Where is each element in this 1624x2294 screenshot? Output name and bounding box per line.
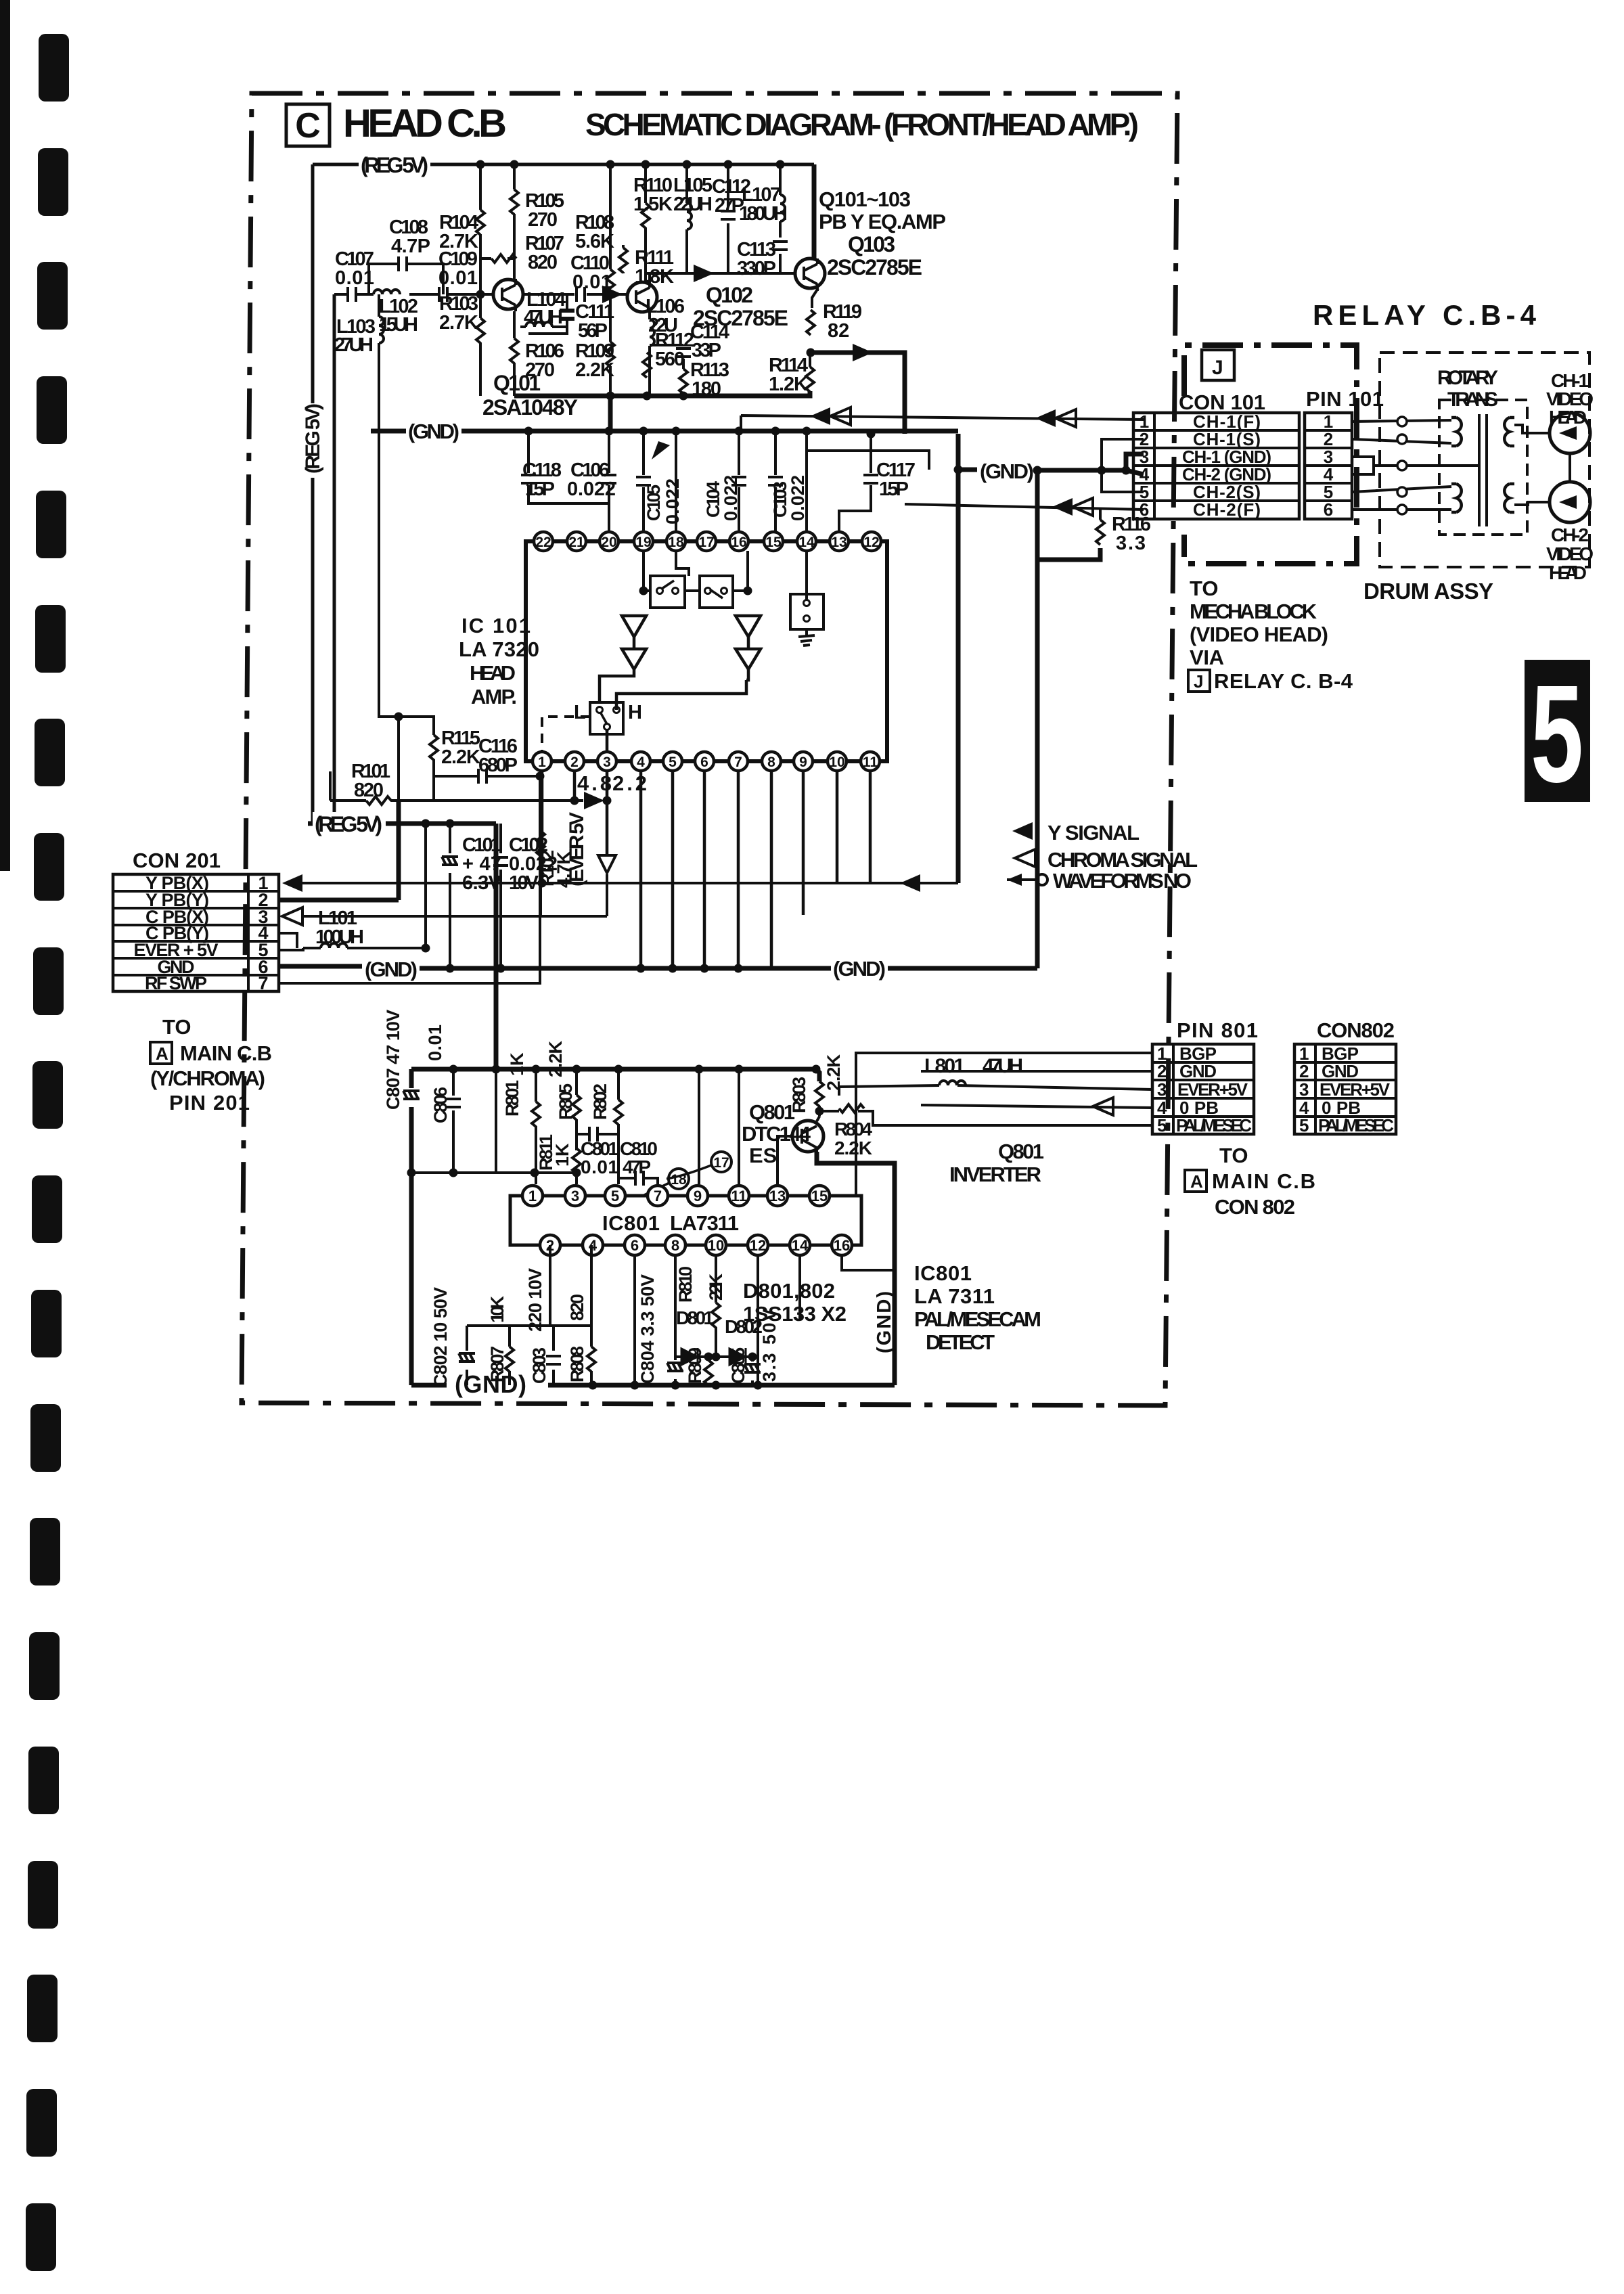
svg-text:11: 11 [731, 1188, 746, 1205]
svg-text:820: 820 [567, 1294, 587, 1321]
svg-text:47UH: 47UH [524, 307, 563, 328]
svg-text:15: 15 [811, 1188, 828, 1205]
svg-text:J: J [1194, 671, 1203, 692]
svg-text:PAL/MESEC: PAL/MESEC [1318, 1115, 1394, 1135]
svg-text:Q801: Q801 [749, 1100, 795, 1124]
svg-text:(GND): (GND) [365, 958, 418, 981]
svg-text:PIN 801: PIN 801 [1177, 1018, 1258, 1042]
svg-text:HEAD C.B: HEAD C.B [343, 102, 512, 145]
svg-text:CON 802: CON 802 [1215, 1195, 1295, 1219]
svg-text:3: 3 [1157, 1079, 1167, 1100]
svg-text:WAVEFORMS NO: WAVEFORMS NO [1053, 869, 1192, 893]
svg-text:22UH: 22UH [673, 194, 713, 215]
svg-text:HEAD: HEAD [1549, 562, 1587, 583]
svg-text:VIDEO: VIDEO [1546, 543, 1594, 564]
svg-text:3: 3 [603, 755, 611, 770]
svg-text:4: 4 [637, 755, 645, 770]
svg-text:1.2K: 1.2K [769, 374, 808, 395]
svg-text:820: 820 [528, 252, 558, 273]
svg-text:0.01: 0.01 [335, 267, 374, 289]
svg-text:4: 4 [589, 1237, 597, 1254]
svg-text:0.01: 0.01 [425, 1025, 445, 1061]
svg-text:C803: C803 [529, 1347, 549, 1384]
svg-text:12: 12 [863, 535, 879, 550]
svg-text:RF SWP: RF SWP [145, 973, 207, 993]
svg-text:3: 3 [1299, 1079, 1309, 1100]
svg-text:2: 2 [1299, 1061, 1309, 1081]
svg-text:21: 21 [568, 535, 585, 550]
svg-text:7: 7 [734, 755, 742, 770]
svg-text:PIN 201: PIN 201 [169, 1091, 250, 1115]
svg-text:8: 8 [767, 755, 775, 770]
svg-text:8: 8 [671, 1237, 679, 1254]
svg-text:47P: 47P [623, 1156, 651, 1177]
svg-text:270: 270 [528, 209, 558, 231]
svg-text:PB Y EQ.AMP: PB Y EQ.AMP [819, 210, 946, 233]
svg-text:CON 201: CON 201 [133, 849, 221, 872]
svg-text:2.2K: 2.2K [575, 359, 614, 381]
svg-text:11: 11 [863, 755, 878, 770]
svg-text:EVER+5V: EVER+5V [1177, 1079, 1248, 1100]
svg-text:TO: TO [162, 1015, 191, 1039]
svg-text:9: 9 [694, 1188, 702, 1205]
svg-text:4.8: 4.8 [577, 771, 612, 795]
svg-text:R809: R809 [685, 1347, 705, 1384]
svg-text:22: 22 [535, 535, 551, 550]
svg-text:GND: GND [1179, 1061, 1217, 1081]
svg-text:VIA: VIA [1190, 646, 1224, 669]
svg-text:PAL/MESECAM: PAL/MESECAM [914, 1307, 1041, 1331]
svg-text:(GND): (GND) [833, 957, 886, 981]
svg-text:C: C [295, 106, 321, 145]
svg-text:15: 15 [765, 535, 782, 550]
svg-text:2: 2 [1157, 1061, 1167, 1081]
svg-text:C805: C805 [728, 1347, 748, 1384]
svg-text:7: 7 [654, 1188, 662, 1205]
svg-text:1: 1 [528, 1188, 537, 1205]
svg-text:27UH: 27UH [334, 334, 374, 356]
svg-text:1.5K: 1.5K [633, 194, 673, 215]
svg-text:1K: 1K [507, 1052, 527, 1076]
svg-text:5: 5 [1531, 656, 1583, 811]
svg-text:5: 5 [1157, 1115, 1167, 1135]
svg-text:C804 3.3 50V: C804 3.3 50V [637, 1274, 658, 1384]
svg-text:0.01: 0.01 [438, 267, 478, 289]
svg-text:MECHA BLOCK: MECHA BLOCK [1190, 600, 1317, 623]
svg-text:0.022: 0.022 [567, 478, 616, 500]
svg-text:Q103: Q103 [848, 232, 895, 256]
svg-text:(GND): (GND) [980, 459, 1034, 483]
svg-text:56P: 56P [578, 320, 608, 342]
svg-text:CON 101: CON 101 [1179, 390, 1265, 414]
svg-text:(GND): (GND) [874, 1291, 895, 1353]
svg-text:DETECT: DETECT [926, 1330, 995, 1354]
svg-text:PAL/MESEC: PAL/MESEC [1176, 1115, 1252, 1135]
svg-text:(REG 5V): (REG 5V) [361, 153, 428, 177]
svg-text:19: 19 [635, 535, 651, 550]
svg-text:820: 820 [354, 780, 384, 801]
svg-text:18: 18 [668, 535, 684, 550]
svg-text:Q801: Q801 [998, 1140, 1044, 1163]
svg-text:LA 7320: LA 7320 [459, 637, 539, 661]
svg-text:33P: 33P [692, 340, 721, 361]
svg-text:HEAD: HEAD [1549, 407, 1587, 428]
svg-text:13: 13 [769, 1188, 786, 1205]
svg-text:(REG 5V): (REG 5V) [302, 403, 324, 474]
svg-text:IC801: IC801 [914, 1261, 972, 1285]
svg-text:D801,802: D801,802 [743, 1279, 835, 1303]
svg-text:LA 7311: LA 7311 [914, 1284, 995, 1308]
svg-text:Q101: Q101 [493, 371, 541, 395]
svg-text:TO: TO [1190, 577, 1219, 600]
svg-text:10: 10 [708, 1237, 724, 1254]
svg-text:10V: 10V [509, 872, 539, 894]
svg-text:10K: 10K [487, 1296, 507, 1324]
svg-text:2.7K: 2.7K [439, 231, 478, 252]
svg-text:MAIN C.B: MAIN C.B [1212, 1169, 1315, 1193]
svg-text:CON802: CON802 [1317, 1018, 1395, 1042]
svg-text:R802: R802 [590, 1083, 610, 1120]
svg-text:CH-2(F): CH-2(F) [1193, 499, 1261, 520]
svg-text:6: 6 [1140, 499, 1149, 520]
svg-text:A: A [1190, 1171, 1203, 1192]
svg-text:330P: 330P [737, 258, 776, 279]
svg-text:Y SIGNAL: Y SIGNAL [1047, 821, 1140, 845]
svg-text:C802 10 50V: C802 10 50V [430, 1287, 451, 1387]
svg-text:4.7K: 4.7K [554, 851, 574, 889]
svg-text:MAIN C.B: MAIN C.B [180, 1041, 272, 1065]
svg-text:2.2K: 2.2K [824, 1054, 844, 1092]
svg-text:GND: GND [1322, 1061, 1359, 1081]
svg-text:AMP.: AMP. [471, 685, 517, 709]
svg-text:0.022: 0.022 [662, 478, 683, 524]
svg-text:16: 16 [731, 535, 746, 550]
svg-text:ROTARY: ROTARY [1437, 367, 1498, 389]
svg-text:5: 5 [611, 1188, 619, 1205]
svg-text:2.7K: 2.7K [439, 312, 478, 334]
svg-text:C807 47 10V: C807 47 10V [383, 1010, 403, 1110]
svg-text:PIN 101: PIN 101 [1306, 387, 1384, 411]
svg-text:17: 17 [698, 535, 714, 550]
svg-text:L801: L801 [924, 1055, 965, 1077]
svg-text:1K: 1K [552, 1143, 572, 1167]
svg-text:560: 560 [655, 348, 685, 370]
svg-text:10: 10 [829, 755, 844, 770]
svg-text:H: H [628, 702, 642, 723]
svg-text:15P: 15P [525, 478, 555, 500]
svg-text:R804: R804 [834, 1119, 872, 1140]
svg-text:SCHEMATIC DIAGRAM- (FRONT/HEA: SCHEMATIC DIAGRAM- (FRONT/HEAD AMP.) [585, 107, 1139, 142]
svg-text:IC 101: IC 101 [461, 614, 531, 637]
svg-text:J: J [1212, 357, 1223, 379]
svg-text:R808: R808 [567, 1346, 587, 1382]
svg-text:1: 1 [538, 755, 546, 770]
svg-text:Q102: Q102 [706, 283, 753, 307]
svg-text:12: 12 [750, 1237, 766, 1254]
svg-text:R805: R805 [556, 1083, 576, 1120]
svg-text:L: L [574, 702, 586, 723]
svg-text:3: 3 [571, 1188, 579, 1205]
svg-text:14: 14 [792, 1237, 809, 1254]
svg-text:D801: D801 [676, 1307, 714, 1328]
svg-text:2.2K: 2.2K [441, 746, 480, 768]
svg-text:(GND): (GND) [408, 420, 459, 443]
svg-text:7: 7 [258, 973, 268, 993]
svg-text:20: 20 [601, 535, 616, 550]
svg-text:6: 6 [700, 755, 708, 770]
svg-text:C105: C105 [644, 485, 664, 521]
svg-text:2: 2 [570, 755, 579, 770]
svg-text:HEAD: HEAD [470, 661, 516, 685]
svg-text:CH-2: CH-2 [1551, 524, 1589, 545]
svg-text:3.3: 3.3 [1116, 533, 1146, 554]
svg-text:6.3V: 6.3V [462, 872, 502, 894]
svg-text:680P: 680P [478, 755, 518, 776]
svg-text:ES: ES [749, 1144, 777, 1167]
svg-text:INVERTER: INVERTER [949, 1163, 1041, 1186]
svg-text:5.6K: 5.6K [575, 231, 614, 252]
svg-text:RELAY C. B-4: RELAY C. B-4 [1214, 669, 1353, 693]
svg-text:1.8K: 1.8K [635, 266, 674, 288]
svg-text:2SC2785E: 2SC2785E [827, 255, 922, 279]
svg-text:14: 14 [798, 535, 815, 550]
svg-text:0.022: 0.022 [788, 475, 808, 521]
svg-text:47UH: 47UH [983, 1055, 1023, 1077]
svg-text:LA7311: LA7311 [670, 1211, 739, 1235]
svg-text:22K: 22K [706, 1274, 726, 1301]
svg-text:EVER+5V: EVER+5V [1319, 1079, 1391, 1100]
svg-text:82: 82 [828, 320, 849, 342]
svg-text:0.01: 0.01 [581, 1156, 618, 1177]
svg-text:R801: R801 [502, 1080, 522, 1117]
svg-text:180UH: 180UH [739, 203, 788, 225]
svg-text:2SA1048Y: 2SA1048Y [482, 395, 578, 420]
svg-text:DRUM ASSY: DRUM ASSY [1363, 579, 1493, 604]
svg-text:100UH: 100UH [315, 926, 364, 948]
svg-text:17: 17 [713, 1155, 729, 1171]
svg-text:13: 13 [831, 535, 847, 550]
svg-text:6: 6 [631, 1237, 639, 1254]
svg-text:(Y/CHROMA): (Y/CHROMA) [150, 1066, 265, 1090]
svg-text:5: 5 [669, 755, 677, 770]
svg-text:TRANS: TRANS [1447, 388, 1498, 411]
svg-text:A: A [156, 1043, 168, 1064]
svg-text:0.022: 0.022 [721, 475, 741, 521]
svg-text:1SS133 X2: 1SS133 X2 [743, 1302, 847, 1326]
svg-text:4.7P: 4.7P [391, 235, 430, 257]
svg-text:2.2K: 2.2K [545, 1041, 566, 1078]
svg-text:(VIDEO HEAD): (VIDEO HEAD) [1190, 623, 1328, 646]
svg-text:2.2K: 2.2K [834, 1138, 872, 1159]
svg-text:TO: TO [1219, 1144, 1248, 1167]
svg-text:6: 6 [1324, 499, 1333, 520]
svg-text:15UH: 15UH [379, 314, 418, 336]
svg-text:16: 16 [834, 1237, 850, 1254]
svg-text:Q101~103: Q101~103 [819, 187, 911, 211]
svg-text:5: 5 [1299, 1115, 1309, 1135]
svg-text:C806: C806 [430, 1087, 451, 1123]
svg-text:220 10V: 220 10V [525, 1268, 545, 1332]
svg-text:15P: 15P [879, 478, 909, 500]
svg-text:9: 9 [799, 755, 807, 770]
svg-text:R810: R810 [675, 1266, 696, 1303]
svg-text:CHROMA SIGNAL: CHROMA SIGNAL [1047, 848, 1198, 872]
svg-text:IC801: IC801 [602, 1211, 660, 1235]
svg-text:(REG 5V): (REG 5V) [315, 812, 382, 836]
svg-text:R807: R807 [487, 1346, 507, 1382]
